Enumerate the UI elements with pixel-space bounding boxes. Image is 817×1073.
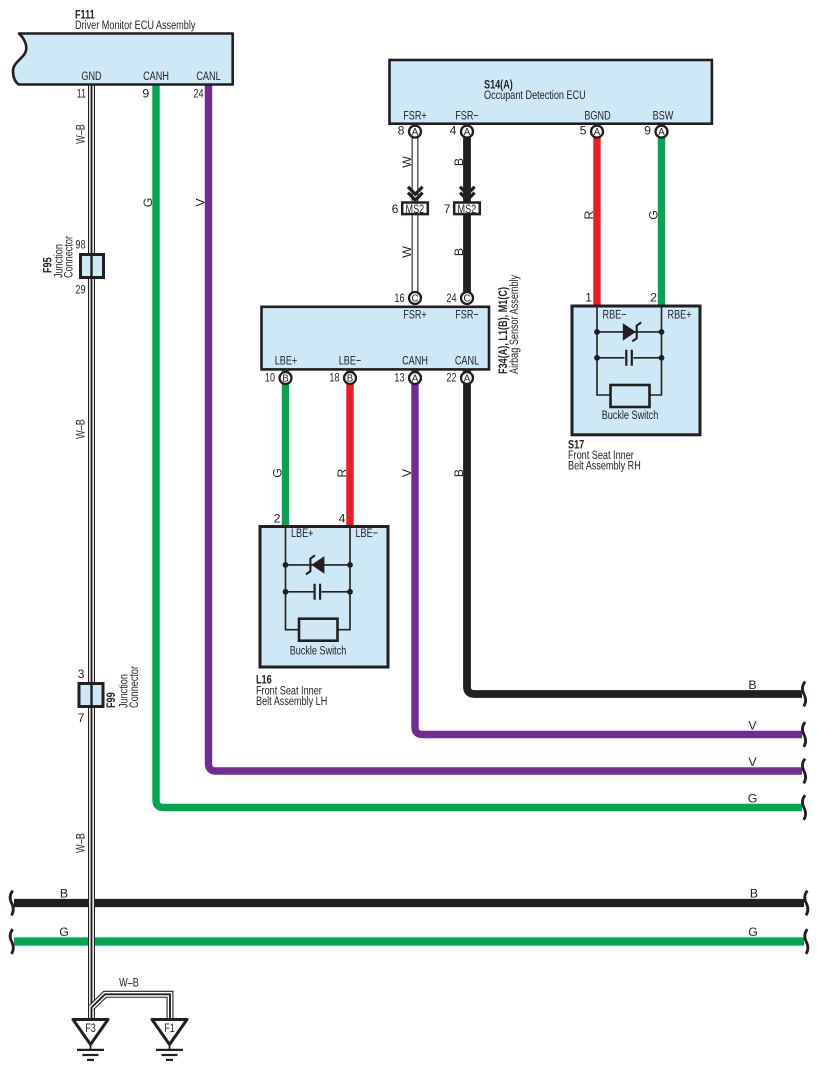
svg-text:GND: GND <box>81 69 101 83</box>
svg-text:A: A <box>464 373 471 384</box>
svg-text:B: B <box>60 886 68 900</box>
svg-text:V: V <box>748 755 757 769</box>
svg-text:11: 11 <box>77 87 87 101</box>
svg-text:A: A <box>658 127 665 138</box>
svg-text:F1: F1 <box>164 1021 175 1035</box>
svg-text:A: A <box>464 127 471 138</box>
svg-text:Belt Assembly RH: Belt Assembly RH <box>568 459 641 473</box>
svg-text:C: C <box>412 293 419 304</box>
svg-text:RBE−: RBE− <box>603 308 627 322</box>
svg-text:98: 98 <box>75 238 85 252</box>
svg-text:B: B <box>748 678 756 692</box>
svg-text:B: B <box>452 469 466 477</box>
svg-text:4: 4 <box>450 124 457 138</box>
svg-text:W: W <box>400 156 414 168</box>
svg-text:B: B <box>282 373 288 384</box>
svg-text:CANL: CANL <box>196 69 220 83</box>
svg-text:2: 2 <box>274 512 281 526</box>
svg-text:B: B <box>750 886 758 900</box>
svg-text:7: 7 <box>444 202 451 216</box>
svg-text:G: G <box>748 791 758 805</box>
svg-text:MS2: MS2 <box>406 202 425 216</box>
svg-text:A: A <box>412 373 419 384</box>
svg-text:MS2: MS2 <box>458 202 477 216</box>
svg-text:W–B: W–B <box>119 976 139 990</box>
svg-text:5: 5 <box>580 124 587 138</box>
svg-text:29: 29 <box>75 283 85 297</box>
svg-text:B: B <box>452 158 466 166</box>
svg-text:4: 4 <box>339 512 346 526</box>
svg-text:Connector: Connector <box>62 236 76 278</box>
svg-text:LBE−: LBE− <box>339 354 362 368</box>
svg-text:R: R <box>582 210 596 219</box>
svg-text:G: G <box>748 925 758 939</box>
svg-text:2: 2 <box>650 291 657 305</box>
svg-text:CANH: CANH <box>402 354 428 368</box>
svg-text:FSR−: FSR− <box>455 307 479 321</box>
svg-text:FSR+: FSR+ <box>403 307 427 321</box>
svg-text:C: C <box>464 293 471 304</box>
svg-text:CANH: CANH <box>143 69 169 83</box>
svg-text:R: R <box>335 468 349 477</box>
svg-text:8: 8 <box>398 124 405 138</box>
svg-text:RBE+: RBE+ <box>668 308 692 322</box>
svg-text:A: A <box>594 127 601 138</box>
svg-text:13: 13 <box>394 371 404 385</box>
svg-text:Belt Assembly LH: Belt Assembly LH <box>256 694 327 708</box>
svg-text:F3: F3 <box>85 1021 96 1035</box>
svg-text:FSR−: FSR− <box>455 109 479 123</box>
svg-text:LBE+: LBE+ <box>275 354 298 368</box>
svg-text:9: 9 <box>644 124 651 138</box>
svg-text:1: 1 <box>585 291 592 305</box>
svg-text:G: G <box>646 210 660 220</box>
svg-text:B: B <box>452 248 466 256</box>
svg-text:W–B: W–B <box>74 124 88 144</box>
svg-text:LBE−: LBE− <box>356 526 379 540</box>
svg-text:Buckle Switch: Buckle Switch <box>602 408 659 422</box>
svg-text:22: 22 <box>446 371 456 385</box>
svg-text:Occupant Detection ECU: Occupant Detection ECU <box>484 88 586 102</box>
svg-text:V: V <box>748 718 757 732</box>
svg-text:7: 7 <box>78 711 85 725</box>
svg-text:A: A <box>412 127 419 138</box>
svg-text:Driver Monitor ECU Assembly: Driver Monitor ECU Assembly <box>75 18 196 32</box>
svg-text:G: G <box>141 198 155 208</box>
svg-text:6: 6 <box>392 202 399 216</box>
svg-text:V: V <box>193 198 207 207</box>
svg-text:G: G <box>59 925 69 939</box>
svg-text:W: W <box>400 246 414 258</box>
svg-text:24: 24 <box>446 291 456 305</box>
svg-text:16: 16 <box>394 291 404 305</box>
svg-text:BGND: BGND <box>584 109 610 123</box>
svg-text:CANL: CANL <box>455 354 479 368</box>
svg-text:W–B: W–B <box>74 419 88 439</box>
svg-text:9: 9 <box>142 87 149 101</box>
svg-text:B: B <box>347 373 353 384</box>
svg-text:LBE+: LBE+ <box>291 526 314 540</box>
svg-text:Airbag Sensor Assembly: Airbag Sensor Assembly <box>507 274 521 374</box>
svg-text:G: G <box>270 468 284 478</box>
svg-text:24: 24 <box>193 87 203 101</box>
svg-text:3: 3 <box>78 667 85 681</box>
svg-text:Buckle Switch: Buckle Switch <box>290 644 347 658</box>
svg-text:W–B: W–B <box>74 833 88 853</box>
svg-text:Connector: Connector <box>127 666 141 708</box>
svg-text:18: 18 <box>329 371 339 385</box>
svg-text:BSW: BSW <box>653 109 674 123</box>
svg-text:10: 10 <box>265 371 275 385</box>
svg-text:FSR+: FSR+ <box>403 109 427 123</box>
svg-text:V: V <box>400 468 414 477</box>
